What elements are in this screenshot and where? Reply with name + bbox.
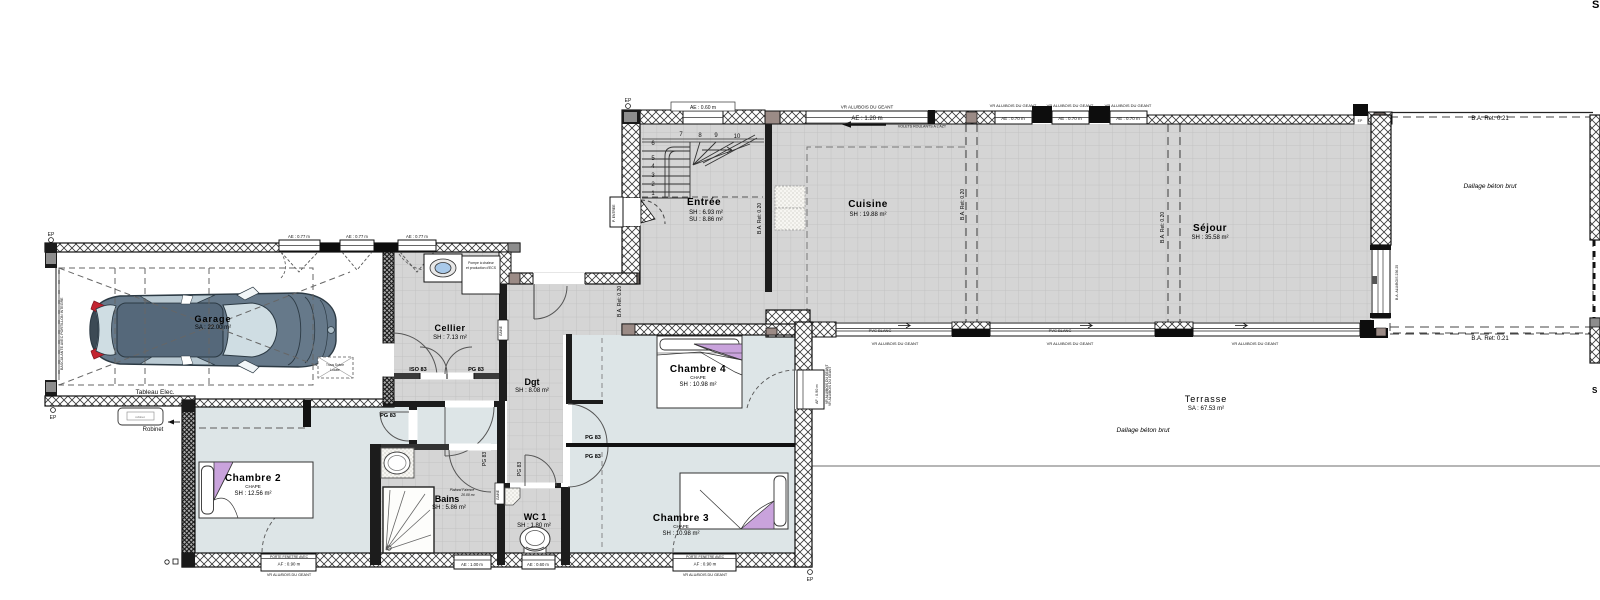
svg-text:Chambre 4: Chambre 4 <box>670 364 726 375</box>
svg-text:Séjour: Séjour <box>1193 223 1227 234</box>
svg-text:AE : 0.70 m: AE : 0.70 m <box>1001 116 1025 121</box>
svg-text:SU : 8.86 m²: SU : 8.86 m² <box>689 217 723 223</box>
svg-text:AE : 0.70 m: AE : 0.70 m <box>1058 116 1082 121</box>
svg-text:Garage: Garage <box>194 314 231 324</box>
svg-text:SH : 7.13 m²: SH : 7.13 m² <box>433 335 467 341</box>
svg-text:CHAPE: CHAPE <box>673 524 689 529</box>
svg-text:20.00 m²: 20.00 m² <box>460 493 475 497</box>
svg-text:B.A. Ret: 0.21: B.A. Ret: 0.21 <box>1471 336 1509 342</box>
svg-text:Cellier: Cellier <box>434 323 465 333</box>
svg-text:B.A. Ret: 0.20: B.A. Ret: 0.20 <box>757 203 763 234</box>
svg-text:SH : 6.93 m²: SH : 6.93 m² <box>689 210 723 216</box>
svg-text:Tableau Elec.: Tableau Elec. <box>135 389 174 396</box>
svg-text:Trous Suivre: Trous Suivre <box>326 363 344 367</box>
svg-text:PG 83: PG 83 <box>585 454 601 460</box>
svg-text:PG 83: PG 83 <box>380 413 396 419</box>
svg-text:VR ALU/BOIS DU GEANT: VR ALU/BOIS DU GEANT <box>990 103 1037 108</box>
svg-text:EP: EP <box>1358 119 1363 123</box>
svg-text:Cuisine: Cuisine <box>848 199 888 210</box>
svg-text:AF : 0.90 m: AF : 0.90 m <box>694 562 717 567</box>
svg-text:SH : 19.88 m²: SH : 19.88 m² <box>849 212 886 218</box>
svg-text:B.A. ALU/BOIS 236.25: B.A. ALU/BOIS 236.25 <box>1395 265 1399 300</box>
svg-text:VOLETS ROULANTS A L'AZT: VOLETS ROULANTS A L'AZT <box>898 125 947 129</box>
svg-text:Dallage béton brut: Dallage béton brut <box>1116 427 1170 434</box>
svg-text:VR ALU/BOIS DU GEANT: VR ALU/BOIS DU GEANT <box>825 364 829 404</box>
svg-text:Dallage béton brut: Dallage béton brut <box>1463 183 1517 190</box>
svg-text:PG 83: PG 83 <box>468 367 484 373</box>
svg-text:AE : 0.70 m: AE : 0.70 m <box>1116 116 1140 121</box>
svg-text:AF : 0.90 m: AF : 0.90 m <box>815 384 819 404</box>
svg-text:B.A. Ret: 0.20: B.A. Ret: 0.20 <box>617 286 623 317</box>
svg-text:S: S <box>1592 386 1598 395</box>
svg-text:VR ALU/BOIS DU GEANT: VR ALU/BOIS DU GEANT <box>267 573 312 577</box>
svg-text:Pompe à chaleur: Pompe à chaleur <box>468 261 495 265</box>
svg-text:WC 1: WC 1 <box>524 512 547 522</box>
svg-text:Dgt: Dgt <box>525 377 540 387</box>
svg-text:Bains: Bains <box>435 494 460 504</box>
svg-text:AE : 1.20 m: AE : 1.20 m <box>851 116 882 122</box>
svg-text:SH : 10.98 m²: SH : 10.98 m² <box>679 382 716 388</box>
svg-text:SH : 8.08 m²: SH : 8.08 m² <box>515 388 549 394</box>
svg-text:SH : 35.58 m²: SH : 35.58 m² <box>1191 235 1228 241</box>
svg-text:SA : 22.00 m²: SA : 22.00 m² <box>195 325 231 331</box>
svg-text:PG 83: PG 83 <box>585 435 601 441</box>
svg-text:AE : 1.00 m: AE : 1.00 m <box>461 562 483 567</box>
svg-text:EP: EP <box>625 98 632 104</box>
svg-text:B.A. Ret: 0.21: B.A. Ret: 0.21 <box>1471 116 1509 122</box>
svg-text:Terrasse: Terrasse <box>1185 394 1228 404</box>
svg-text:VR ALU/BOIS DU GEANT: VR ALU/BOIS DU GEANT <box>683 573 728 577</box>
svg-text:et production d'ECS: et production d'ECS <box>466 266 497 270</box>
svg-text:PG 83: PG 83 <box>482 452 488 466</box>
svg-text:VR ALU/BOIS DU GEANT: VR ALU/BOIS DU GEANT <box>841 105 894 110</box>
svg-text:Robinet: Robinet <box>143 427 164 433</box>
svg-text:VR ALU/BOIS DU GEANT: VR ALU/BOIS DU GEANT <box>1232 341 1279 346</box>
svg-text:PVC BLANC: PVC BLANC <box>1049 328 1072 333</box>
svg-text:EP: EP <box>48 232 55 238</box>
svg-text:robinet: robinet <box>135 415 144 419</box>
svg-text:PORTE FENETRE AVEC: PORTE FENETRE AVEC <box>270 555 309 559</box>
svg-text:SA : 67.53 m²: SA : 67.53 m² <box>1188 406 1224 412</box>
svg-text:Entrée: Entrée <box>687 197 721 208</box>
svg-text:ISO 83: ISO 83 <box>409 367 426 373</box>
svg-text:P. ENTREE: P. ENTREE <box>612 204 616 222</box>
svg-text:B.A. Ret: 0.20: B.A. Ret: 0.20 <box>1160 212 1166 243</box>
svg-text:10: 10 <box>734 134 741 140</box>
svg-text:GAINE: GAINE <box>499 326 503 336</box>
svg-text:PVC BLANC: PVC BLANC <box>869 328 892 333</box>
svg-text:AE : 0.77 m: AE : 0.77 m <box>288 234 310 239</box>
svg-text:BASCULANTE AVEC PORTILLON INTE: BASCULANTE AVEC PORTILLON INTEGRE <box>60 297 64 370</box>
svg-text:VR ALU/BOIS DU GEANT: VR ALU/BOIS DU GEANT <box>1047 341 1094 346</box>
svg-text:Chambre 3: Chambre 3 <box>653 513 709 524</box>
svg-text:PORTE FENETRE AVEC: PORTE FENETRE AVEC <box>686 555 725 559</box>
svg-text:B.A. Ret: 0.20: B.A. Ret: 0.20 <box>960 189 966 220</box>
svg-text:CHAPE: CHAPE <box>245 484 261 489</box>
svg-text:GAINE: GAINE <box>496 490 500 500</box>
svg-text:AE : 0.60 m: AE : 0.60 m <box>690 105 716 111</box>
svg-text:PG 83: PG 83 <box>517 462 523 476</box>
svg-text:SH : 12.56 m²: SH : 12.56 m² <box>234 491 271 497</box>
svg-text:AE : 0.60 m: AE : 0.60 m <box>527 562 549 567</box>
svg-text:VR ALU/BOIS DU GEANT: VR ALU/BOIS DU GEANT <box>1105 103 1152 108</box>
svg-text:SH : 5.86 m²: SH : 5.86 m² <box>432 505 466 511</box>
svg-text:Chambre 2: Chambre 2 <box>225 473 281 484</box>
svg-text:CHAPE: CHAPE <box>690 375 706 380</box>
svg-text:Plafond Faience: Plafond Faience <box>450 488 475 492</box>
svg-text:AE : 0.77 m: AE : 0.77 m <box>346 234 368 239</box>
svg-text:AF : 0.90 m: AF : 0.90 m <box>278 562 301 567</box>
svg-text:S: S <box>1592 0 1599 11</box>
svg-text:VR ALU/BOIS DU GEANT: VR ALU/BOIS DU GEANT <box>1047 103 1094 108</box>
svg-text:VR ALU/BOIS DU GEANT: VR ALU/BOIS DU GEANT <box>872 341 919 346</box>
svg-text:EP: EP <box>50 415 57 421</box>
svg-text:Locate: Locate <box>330 368 340 372</box>
svg-text:AE : 0.77 m: AE : 0.77 m <box>406 234 428 239</box>
svg-text:SH : 1.80 m²: SH : 1.80 m² <box>517 523 551 529</box>
svg-text:EP: EP <box>807 577 814 583</box>
svg-text:SH : 10.98 m²: SH : 10.98 m² <box>662 531 699 537</box>
